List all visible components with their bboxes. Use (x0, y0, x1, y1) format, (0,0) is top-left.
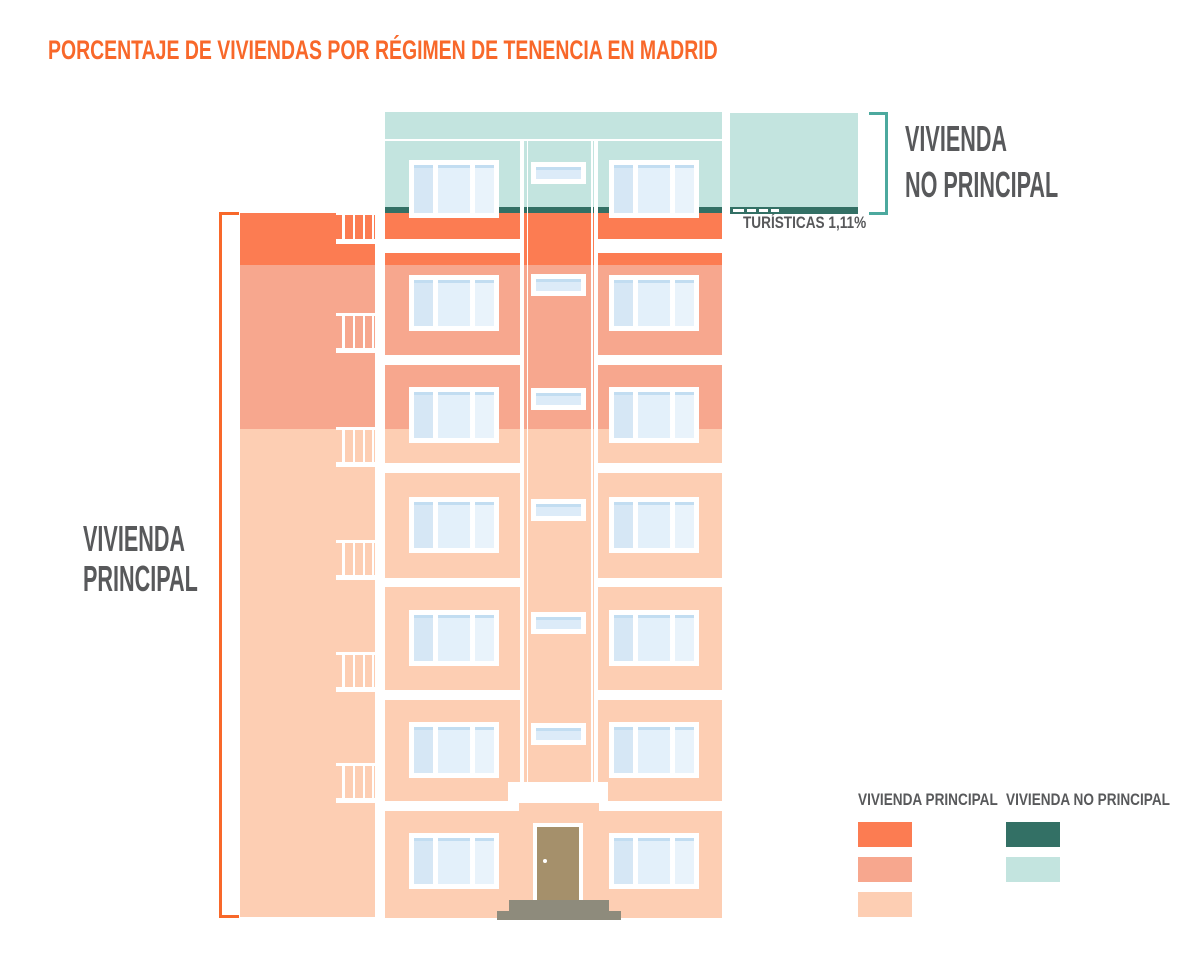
balcony-slab (336, 348, 377, 353)
balcony-slat (353, 215, 356, 239)
balcony-slat (353, 655, 356, 687)
window-pane (638, 165, 670, 213)
stairwell-line (594, 141, 598, 782)
window-pane (536, 728, 581, 740)
floor-slab-gap (598, 355, 722, 365)
balcony-slab (336, 462, 377, 467)
window-pane (536, 279, 581, 291)
window (409, 722, 499, 778)
balcony-slat (342, 215, 345, 239)
balcony-slat (353, 766, 356, 798)
window (609, 722, 699, 778)
balcony-slat (363, 430, 366, 462)
window (609, 610, 699, 666)
roof-cornice (385, 112, 722, 139)
window-pane (414, 502, 433, 548)
balcony-slat (342, 543, 345, 575)
balcony-slat (372, 215, 375, 239)
stairwell-line (527, 141, 529, 782)
window-pane (614, 727, 633, 773)
window-pane (638, 280, 670, 326)
stairwell-window (531, 388, 586, 410)
window-pane (536, 393, 581, 405)
window-pane (414, 615, 433, 661)
window (409, 610, 499, 666)
balcony-slat (372, 543, 375, 575)
stairwell-window (531, 274, 586, 296)
legend-swatch-no-principal (1006, 822, 1060, 847)
window (409, 497, 499, 553)
infographic-canvas: PORCENTAJE DE VIVIENDAS POR RÉGIMEN DE T… (0, 0, 1200, 958)
stairwell-line (591, 141, 593, 782)
balcony-slat (372, 655, 375, 687)
principal-bracket-shape (219, 212, 239, 918)
window-pane (675, 615, 694, 661)
window (609, 160, 699, 218)
floor-slab-gap (598, 801, 722, 811)
turisticas-dash (733, 209, 744, 212)
window-pane (438, 727, 470, 773)
balcony-slat (353, 543, 356, 575)
entrance-lintel (508, 782, 608, 803)
no-principal-bracket-shape (869, 112, 888, 215)
window (609, 275, 699, 331)
window-pane (675, 838, 694, 884)
legend-title-no-principal: VIVIENDA NO PRINCIPAL (1006, 791, 1170, 809)
window-pane (638, 502, 670, 548)
window (409, 275, 499, 331)
window-pane (675, 392, 694, 438)
window-pane (638, 615, 670, 661)
floor-slab-gap (598, 463, 722, 473)
group-label-line2: NO PRINCIPAL (905, 162, 1058, 208)
group-label-line1: VIVIENDA (83, 519, 198, 559)
window-pane (614, 615, 633, 661)
window-pane (475, 392, 494, 438)
window (409, 387, 499, 443)
window (609, 387, 699, 443)
balcony-slat (363, 543, 366, 575)
window-pane (414, 727, 433, 773)
entrance-door (537, 827, 579, 900)
balcony-slat (363, 215, 366, 239)
group-label-vivienda-principal: VIVIENDA PRINCIPAL (83, 519, 198, 599)
window-pane (438, 838, 470, 884)
window-pane (614, 502, 633, 548)
window-pane (675, 165, 694, 213)
window-pane (475, 165, 494, 213)
window-pane (438, 615, 470, 661)
floor-slab-gap (385, 355, 520, 365)
balcony-slab (336, 687, 377, 692)
floor-slab-gap (385, 578, 520, 587)
balcony-slat (363, 655, 366, 687)
legend-swatch-no-principal (1006, 857, 1060, 882)
legend-swatch-principal (858, 857, 912, 882)
window-pane (414, 165, 433, 213)
page-title: PORCENTAJE DE VIVIENDAS POR RÉGIMEN DE T… (48, 35, 718, 66)
balcony-slat (342, 316, 345, 348)
window (409, 833, 499, 889)
window-pane (614, 392, 633, 438)
balcony-slat (372, 430, 375, 462)
balcony-slat (363, 316, 366, 348)
window-pane (638, 392, 670, 438)
group-label-line2: PRINCIPAL (83, 559, 198, 599)
segment-label-turisticas: TURÍSTICAS 1,11% (743, 214, 866, 232)
balcony-slab (336, 239, 377, 244)
window-pane (675, 280, 694, 326)
window-pane (614, 838, 633, 884)
balcony-slat (342, 766, 345, 798)
balcony-slat (342, 430, 345, 462)
balcony-slat (353, 430, 356, 462)
floor-slab-gap (385, 239, 520, 253)
window-pane (475, 280, 494, 326)
group-label-line1: VIVIENDA (905, 116, 1058, 162)
window-pane (475, 502, 494, 548)
stairwell-window (531, 162, 586, 184)
entrance-step (509, 900, 609, 911)
floor-slab-gap (598, 690, 722, 700)
window-pane (614, 280, 633, 326)
balcony-slab (336, 575, 377, 580)
window (609, 497, 699, 553)
door-knob-icon (543, 859, 547, 863)
floor-slab-gap (385, 690, 520, 700)
stairwell-window (531, 499, 586, 521)
window-pane (438, 165, 470, 213)
window (409, 160, 499, 218)
window-pane (638, 838, 670, 884)
window-pane (614, 165, 633, 213)
balcony-slab (336, 798, 377, 803)
window-pane (438, 392, 470, 438)
group-label-vivienda-no-principal: VIVIENDA NO PRINCIPAL (905, 116, 1058, 208)
window-pane (475, 838, 494, 884)
window-pane (675, 727, 694, 773)
balcony-slat (372, 316, 375, 348)
window-pane (414, 392, 433, 438)
stairwell-window (531, 723, 586, 745)
window-pane (438, 502, 470, 548)
legend-swatch-principal (858, 822, 912, 847)
window-pane (536, 617, 581, 629)
turisticas-dash (771, 209, 779, 212)
balcony-slat (363, 766, 366, 798)
turisticas-dash (747, 209, 756, 212)
floor-slab-gap (385, 801, 520, 811)
window-pane (536, 167, 581, 179)
floor-slab-gap (598, 578, 722, 587)
balcony-slat (353, 316, 356, 348)
window-pane (438, 280, 470, 326)
entrance-step (497, 911, 621, 920)
stairwell-line (520, 141, 524, 782)
window-pane (475, 727, 494, 773)
floor-slab-gap (598, 239, 722, 253)
window-pane (638, 727, 670, 773)
window-pane (675, 502, 694, 548)
balcony-slat (342, 655, 345, 687)
window-pane (475, 615, 494, 661)
window (609, 833, 699, 889)
stairwell-window (531, 612, 586, 634)
floor-slab-gap (385, 463, 520, 473)
otros-block (730, 113, 858, 207)
window-pane (536, 504, 581, 516)
balcony-slat (372, 766, 375, 798)
window-pane (414, 280, 433, 326)
turisticas-dash (759, 209, 768, 212)
legend-swatch-principal (858, 892, 912, 917)
window-pane (414, 838, 433, 884)
legend-title-principal: VIVIENDA PRINCIPAL (858, 791, 998, 809)
